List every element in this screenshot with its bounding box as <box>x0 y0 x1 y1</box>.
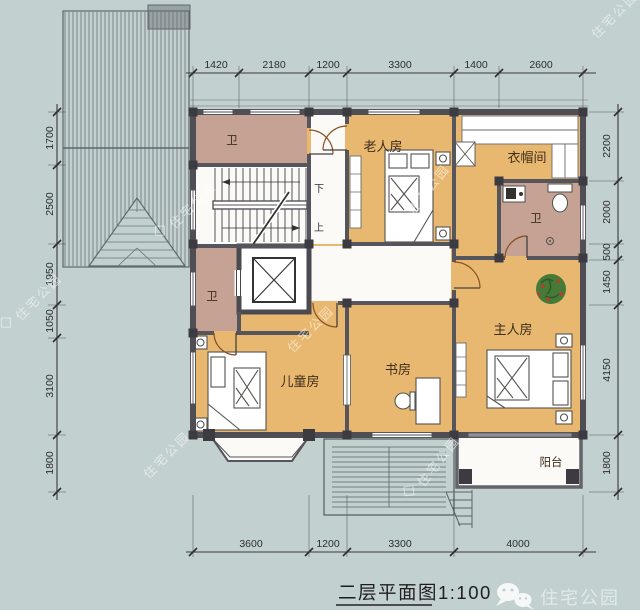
svg-text:3100: 3100 <box>44 374 56 398</box>
svg-text:2200: 2200 <box>601 134 613 158</box>
bay-window <box>210 435 310 461</box>
label-stair-down: 下 <box>314 184 324 195</box>
svg-text:1800: 1800 <box>601 451 613 475</box>
svg-text:2500: 2500 <box>44 192 56 216</box>
elevator <box>235 246 310 312</box>
label-bath-small: 卫 <box>206 291 218 303</box>
hall-band <box>311 246 451 301</box>
label-master-room: 主人房 <box>493 322 532 337</box>
svg-text:3600: 3600 <box>239 538 263 550</box>
bath-small-floor <box>195 248 237 331</box>
svg-text:2600: 2600 <box>529 59 553 71</box>
label-stair-up: 上 <box>314 222 324 234</box>
svg-text:2000: 2000 <box>601 200 613 224</box>
label-balcony: 阳台 <box>540 455 563 469</box>
title-scale: 1:100 <box>438 582 492 603</box>
svg-text:500: 500 <box>601 243 613 261</box>
label-bath-top: 卫 <box>226 135 238 147</box>
drawing-title: 二层平面图 1:100 <box>336 582 492 605</box>
svg-text:4000: 4000 <box>506 538 530 550</box>
svg-text:3300: 3300 <box>388 538 412 550</box>
svg-text:2180: 2180 <box>262 59 286 71</box>
svg-text:1700: 1700 <box>44 126 56 150</box>
floor-plan-image: 卫 老人房 衣帽间 卫 卫 主人房 书房 儿童房 阳台 下 上 1420 218 <box>0 0 640 610</box>
svg-text:1420: 1420 <box>204 59 228 71</box>
branding-name: 住宅公园 <box>540 588 620 608</box>
svg-text:1200: 1200 <box>316 59 340 71</box>
label-elder-room: 老人房 <box>363 139 402 154</box>
svg-text:1800: 1800 <box>44 451 56 475</box>
label-study: 书房 <box>385 362 411 377</box>
bath-top-floor <box>195 114 307 163</box>
label-kids-room: 儿童房 <box>280 374 319 389</box>
plant <box>536 274 566 304</box>
svg-text:1200: 1200 <box>316 538 340 550</box>
svg-text:1400: 1400 <box>464 59 488 71</box>
svg-text:3300: 3300 <box>388 59 412 71</box>
title-text: 二层平面图 <box>338 582 438 603</box>
label-cloakroom: 衣帽间 <box>507 150 546 165</box>
svg-text:1050: 1050 <box>44 309 56 333</box>
label-bath-master: 卫 <box>530 213 542 225</box>
svg-text:4150: 4150 <box>601 358 613 382</box>
svg-text:1450: 1450 <box>601 270 613 294</box>
